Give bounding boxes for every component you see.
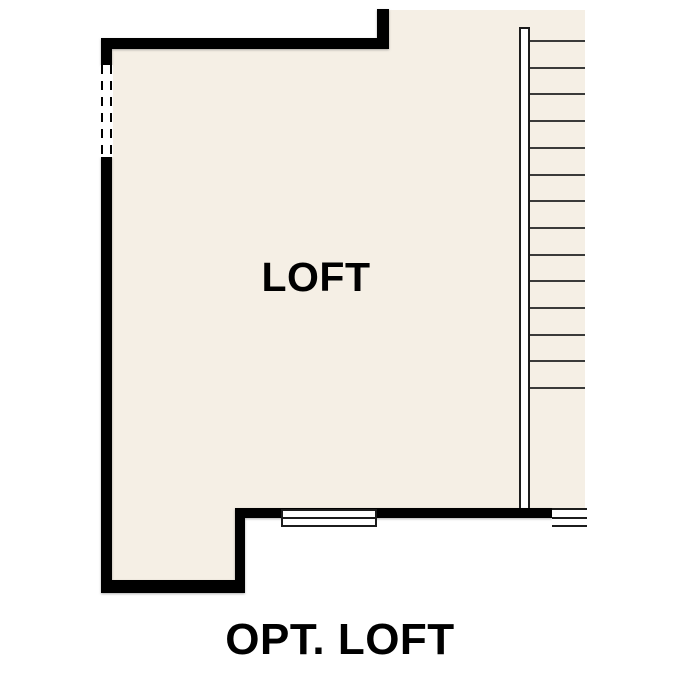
stair-tread — [530, 200, 585, 202]
stair-tread — [530, 334, 585, 336]
stair-tread — [530, 360, 585, 362]
window-mullion — [552, 517, 587, 519]
window-symbol-cropped — [552, 508, 587, 527]
window-symbol — [281, 509, 377, 527]
stair-tread — [530, 387, 585, 389]
room-label: LOFT — [216, 255, 416, 299]
floor-plan: LOFT OPT. LOFT — [0, 0, 687, 687]
dashed-line — [110, 65, 112, 157]
wall-bottom-left — [101, 580, 245, 593]
wall-left-lower — [101, 157, 112, 593]
stair-tread — [530, 227, 585, 229]
dashed-optional-wall — [100, 65, 113, 157]
stair-tread — [530, 307, 585, 309]
stair-tread — [530, 67, 585, 69]
loft-floor-lower-left — [112, 508, 235, 581]
wall-step-bottom — [235, 508, 245, 593]
dashed-line — [101, 65, 103, 157]
stair-tread — [530, 40, 585, 42]
stair-tread — [530, 174, 585, 176]
stair-railing — [519, 27, 530, 508]
window-mullion — [281, 517, 377, 519]
stair-tread — [530, 93, 585, 95]
wall-top — [101, 38, 389, 49]
wall-left-upper — [101, 38, 112, 65]
stair-tread — [530, 254, 585, 256]
stair-tread — [530, 147, 585, 149]
plan-caption: OPT. LOFT — [190, 617, 490, 663]
wall-step-top — [377, 9, 389, 49]
stair-tread — [530, 280, 585, 282]
stair-tread — [530, 120, 585, 122]
loft-floor-upper-right — [389, 10, 585, 50]
